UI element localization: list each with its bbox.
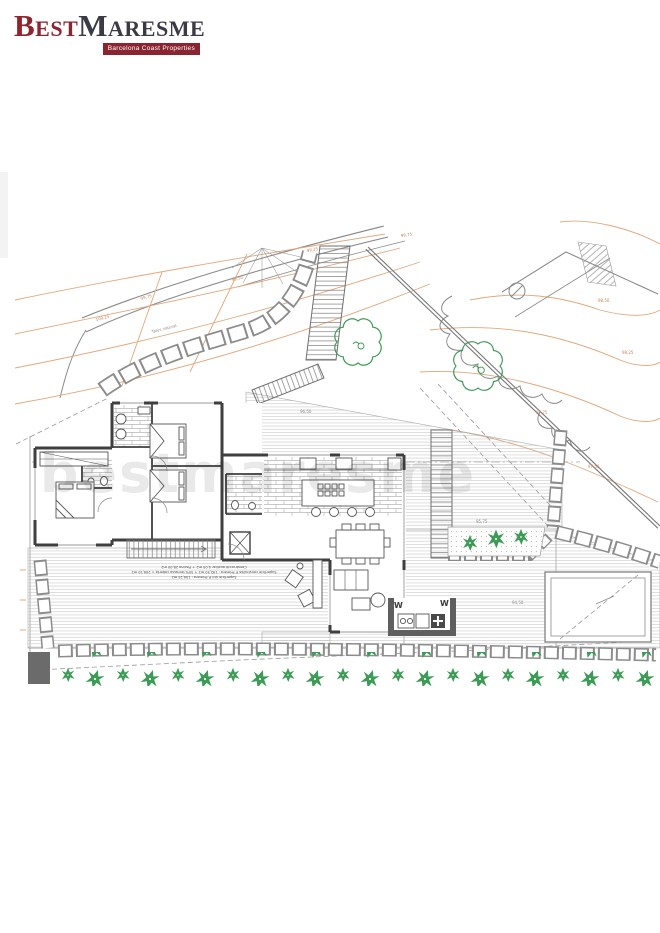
w-marker-right: W (440, 599, 449, 608)
dining-set (330, 524, 390, 564)
w-marker-left: W (394, 601, 403, 610)
elevation-label: 97,50 (588, 464, 600, 469)
watermark-text: bestmaresme (40, 442, 476, 505)
elevation-label: 98,50 (598, 298, 610, 303)
ramp-hatch (578, 242, 616, 286)
brochure-page: BestMaresme Barcelona Coast Properties (0, 0, 660, 933)
manhole-icon (509, 283, 525, 299)
ridge-line (502, 252, 658, 294)
tree-icon (335, 319, 381, 365)
elevation-label: 96,50 (300, 409, 312, 414)
elevation-label: 98,25 (622, 350, 634, 355)
elevation-label: 98,75 (400, 231, 412, 238)
planted-bed (448, 527, 545, 556)
elevation-label: 97,75 (536, 410, 548, 415)
svg-text:Superfície construïda P. Prime: Superfície construïda P. Primera : 192,5… (132, 570, 277, 574)
elevation-label: 99,75 (140, 293, 153, 301)
swimming-pool (545, 572, 651, 642)
elevation-label: 99,25 (306, 246, 319, 253)
elevation-label: 100,25 (95, 314, 110, 322)
svg-text:Construcció auxiliar 4,05 m2 +: Construcció auxiliar 4,05 m2 + Piscina 2… (161, 565, 246, 569)
scan-artifact (0, 172, 8, 258)
slope-label: Talús natural (150, 323, 177, 334)
corner-pillar (28, 652, 50, 684)
svg-text:Superfície útil P. Primera : 1: Superfície útil P. Primera : 156,25 m2 (171, 575, 236, 579)
elevation-label: 95,75 (476, 519, 488, 524)
site-plan-drawing: 100,25 99,75 99,50 99,25 98,75 98,50 98,… (0, 0, 660, 933)
elevation-label: 94,50 (512, 600, 524, 605)
hedge-plant-row (55, 652, 656, 686)
lift-shaft (230, 532, 250, 554)
elevation-label: 99,50 (231, 275, 244, 282)
